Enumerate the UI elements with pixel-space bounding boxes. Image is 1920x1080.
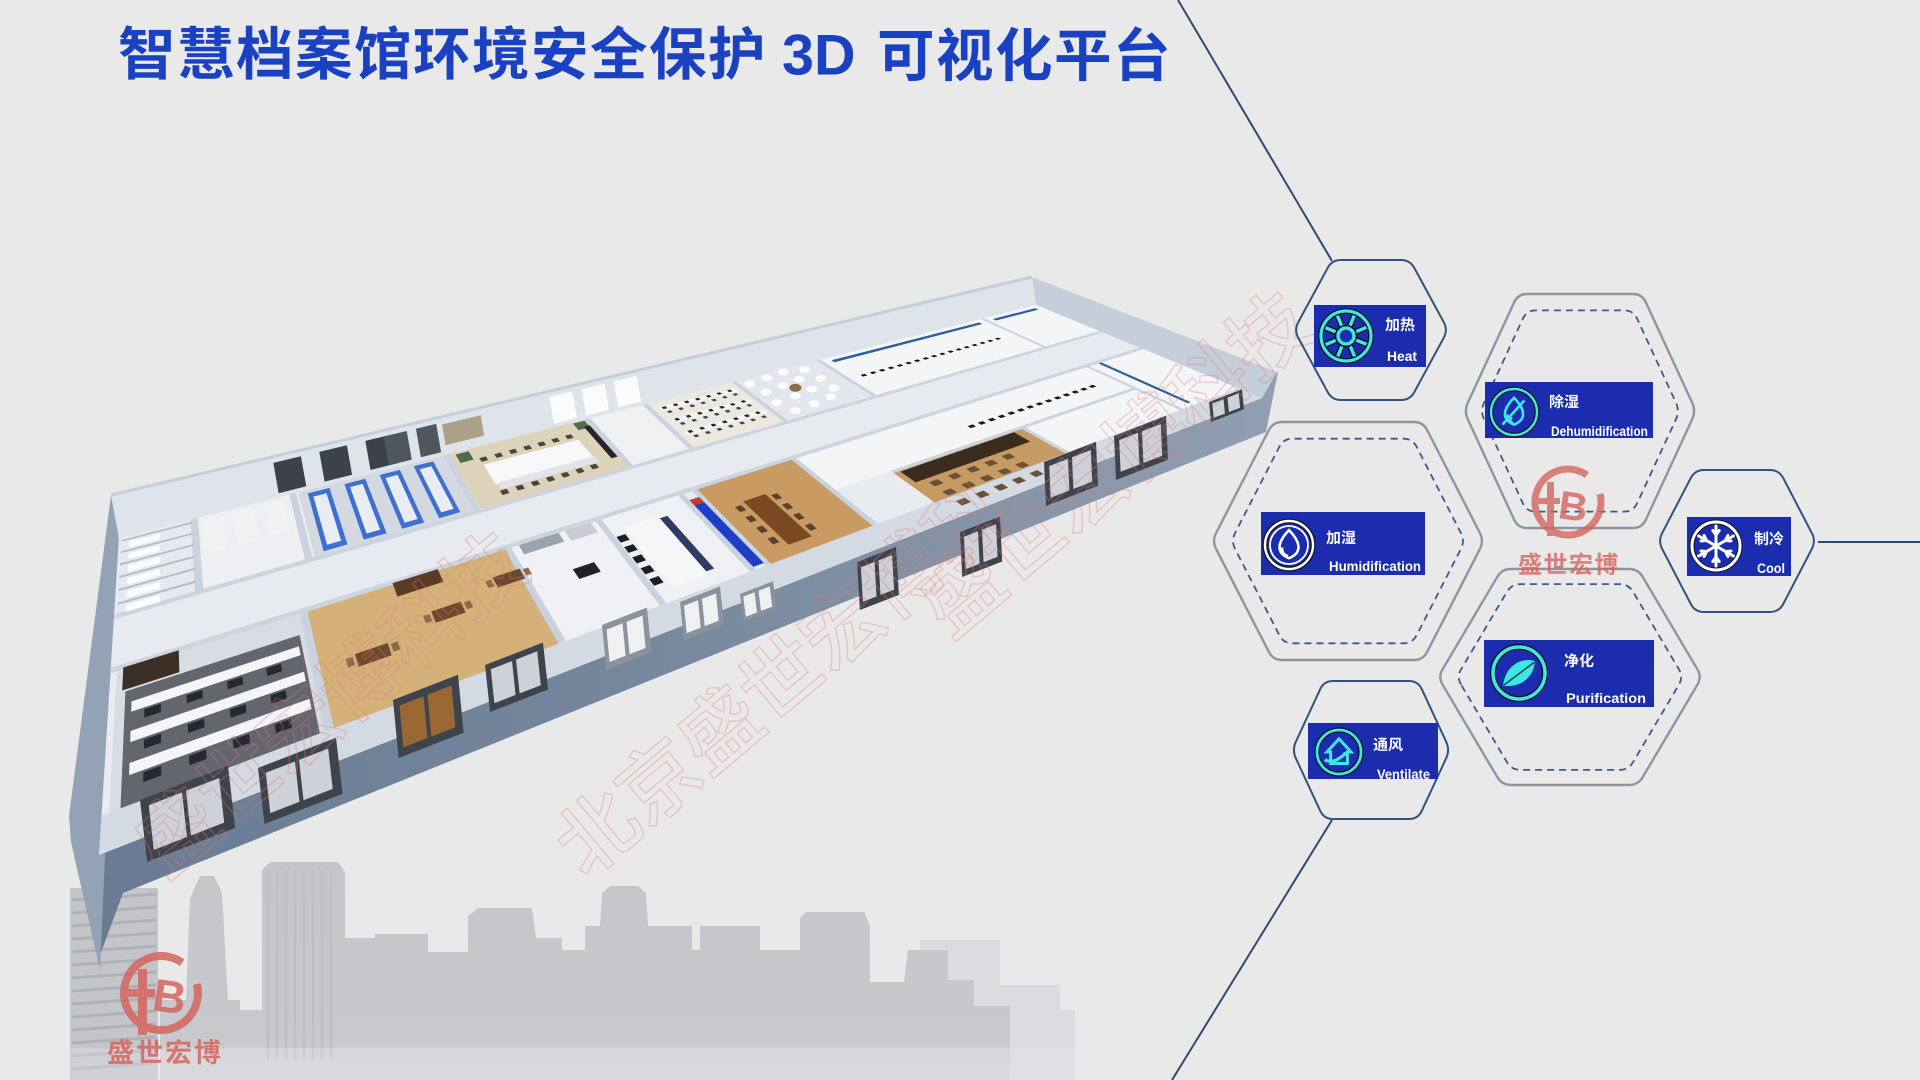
svg-text:Humidification: Humidification — [1329, 559, 1421, 574]
svg-text:Ventilate: Ventilate — [1377, 767, 1430, 782]
svg-text:Purification: Purification — [1566, 691, 1646, 706]
svg-text:Cool: Cool — [1757, 561, 1785, 576]
svg-text:Heat: Heat — [1387, 349, 1418, 364]
svg-text:3D: 3D — [782, 24, 856, 88]
